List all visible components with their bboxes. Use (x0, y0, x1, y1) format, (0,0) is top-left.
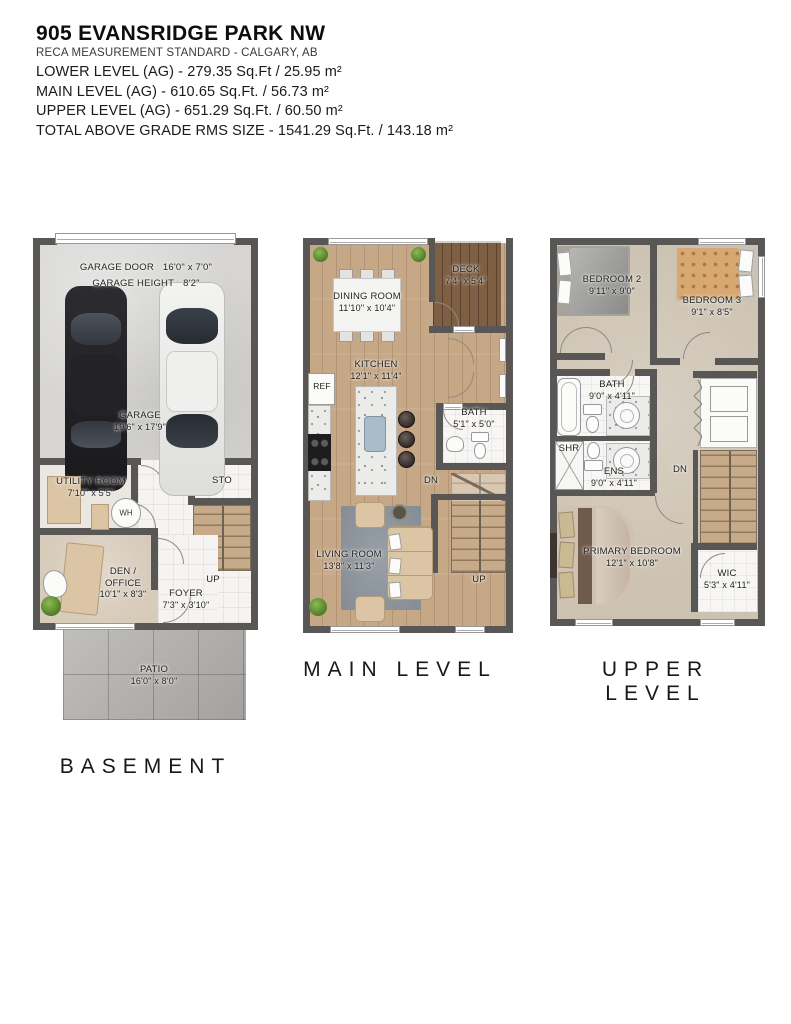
stairs-dn-label: DN (424, 475, 438, 487)
room-label-dining: DINING ROOM 11'10" x 10'4" (333, 291, 401, 314)
wall (691, 543, 698, 612)
upper-level-title: UPPER LEVEL (548, 658, 763, 706)
living-window (330, 626, 400, 633)
room-label-upper-bath: BATH 9'0" x 4'11" (589, 379, 635, 402)
dining-chair (360, 331, 374, 342)
primary-window (575, 619, 613, 626)
car-window (166, 414, 219, 448)
wall (650, 369, 657, 493)
main-level-plan: REF DECK 7'4" x 5'4" (303, 238, 513, 638)
deck-opening (453, 326, 475, 333)
floor-plan-page: 905 EVANSRIDGE PARK NW RECA MEASUREMENT … (0, 0, 791, 1024)
wall (33, 238, 40, 630)
car-window (166, 308, 219, 344)
side-table (391, 504, 408, 521)
room-label-den: DEN / OFFICE 10'1" x 8'3" (93, 566, 153, 601)
wall (251, 238, 258, 630)
wall (429, 238, 435, 302)
bed3-duvet (677, 248, 739, 300)
car-roof (71, 354, 122, 416)
bedroom3-side-window (758, 256, 765, 298)
wall (436, 463, 513, 470)
wic-window (700, 619, 735, 626)
garage-height-label: GARAGE HEIGHT8'2" (92, 278, 199, 290)
room-label-wic: WIC 5'3" x 4'11" (704, 568, 750, 591)
plant (411, 247, 426, 262)
plant (313, 247, 328, 262)
refrigerator-label: REF (313, 381, 331, 393)
wall (550, 490, 655, 496)
round-sink (613, 402, 640, 429)
plant (309, 598, 327, 616)
wall (131, 465, 138, 503)
room-label-garage: GARAGE 19'6" x 17'9" (114, 410, 166, 433)
wall (691, 543, 757, 550)
room-label-deck: DECK 7'4" x 5'4" (445, 264, 487, 287)
dining-window (328, 238, 428, 245)
wall (693, 450, 698, 545)
door-leaf (499, 374, 506, 398)
stairs-up-label: UP (206, 574, 220, 586)
pillow (558, 542, 575, 569)
armchair (355, 502, 385, 528)
car-roof (166, 351, 219, 412)
area-lower: LOWER LEVEL (AG) - 279.35 Sq.Ft / 25.95 … (36, 63, 453, 83)
wall (715, 358, 758, 365)
closet-shelf (710, 386, 748, 412)
pillow (557, 251, 572, 276)
primary-side-window (550, 533, 557, 578)
water-heater-label: WH (119, 509, 132, 518)
room-label-ens: ENS 9'0" x 4'11" (591, 466, 637, 489)
stove (308, 434, 331, 471)
sofa-pillow (388, 533, 402, 551)
sofa-pillow (388, 557, 402, 574)
sofa-pillow (388, 582, 401, 599)
bath-sink (446, 436, 464, 452)
room-label-living: LIVING ROOM 13'8" x 11'3" (316, 549, 382, 572)
bar-stool (398, 431, 415, 448)
bathtub (557, 378, 581, 436)
pillow (558, 572, 575, 599)
shower-label: SHR (559, 443, 580, 455)
pillow (738, 249, 754, 272)
room-label-primary: PRIMARY BEDROOM 12'1" x 10'8" (583, 546, 681, 569)
wall (431, 494, 513, 500)
wall (436, 403, 443, 470)
utility-cabinet (91, 504, 109, 530)
bedroom3-window (698, 238, 746, 245)
garage-door-label: GARAGE DOOR16'0" x 7'0" (80, 262, 212, 274)
wall (550, 369, 610, 376)
bar-stool (398, 451, 415, 468)
room-label-patio: PATIO 16'0" x 8'0" (131, 664, 178, 687)
room-label-main-bath: BATH 5'1" x 5'0" (453, 407, 495, 430)
plant (41, 596, 61, 616)
toilet (583, 404, 602, 434)
wall (550, 353, 605, 360)
upper-level-plan: BEDROOM 2 9'11" x 9'0" BEDROOM 3 9'1" x … (550, 238, 765, 634)
stairs-up-label: UP (472, 574, 486, 586)
room-label-bedroom3: BEDROOM 3 9'1" x 8'5" (683, 295, 742, 318)
closet-shelf (710, 416, 748, 442)
door-leaf (499, 338, 506, 362)
accordion-door (694, 380, 702, 446)
den-window (55, 623, 135, 630)
room-label-foyer: FOYER 7'3" x 3'10" (163, 588, 210, 611)
dining-chair (339, 331, 353, 342)
page-title: 905 EVANSRIDGE PARK NW (36, 22, 453, 46)
wall (650, 238, 657, 360)
stair-window (455, 626, 485, 633)
bar-stool (398, 411, 415, 428)
room-label-kitchen: KITCHEN 12'1" x 11'4" (350, 359, 401, 382)
wall (693, 371, 757, 378)
wall (506, 238, 513, 633)
room-label-storage: STO (212, 475, 232, 487)
white-car (159, 282, 225, 496)
toilet (471, 432, 489, 460)
main-level-title: MAIN LEVEL (295, 658, 505, 682)
area-upper: UPPER LEVEL (AG) - 651.29 Sq.Ft. / 60.50… (36, 102, 453, 122)
black-car (65, 286, 127, 491)
stairs-dn-label: DN (673, 464, 687, 476)
pillow (557, 279, 572, 304)
basement-title: BASEMENT (33, 755, 258, 779)
basement-plan: WH GARAGE DOOR16'0" x 7'0" GARAGE HEIGHT… (33, 238, 258, 722)
island-sink (364, 416, 386, 452)
header: 905 EVANSRIDGE PARK NW RECA MEASUREMENT … (36, 22, 453, 141)
wall (188, 498, 251, 505)
pillow (558, 511, 575, 538)
area-main: MAIN LEVEL (AG) - 610.65 Sq.Ft. / 56.73 … (36, 83, 453, 103)
stairs-upper (700, 450, 757, 545)
room-label-utility: UTILITY ROOM 7'10" x 5'5" (56, 476, 126, 499)
dining-chair (381, 331, 395, 342)
area-total: TOTAL ABOVE GRADE RMS SIZE - 1541.29 Sq.… (36, 122, 453, 142)
wall (650, 358, 680, 365)
measurement-standard: RECA MEASUREMENT STANDARD - CALGARY, AB (36, 47, 453, 59)
car-window (71, 313, 122, 346)
garage-door (55, 233, 236, 244)
room-label-bedroom2: BEDROOM 2 9'11" x 9'0" (583, 274, 642, 297)
armchair (355, 596, 385, 622)
